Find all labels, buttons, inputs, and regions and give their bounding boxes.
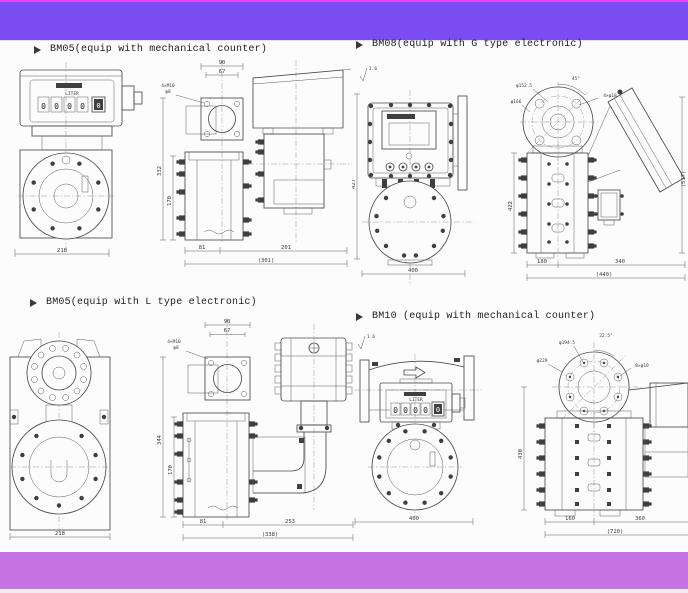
- dim-flange-bolt-circle: φ152.5: [516, 83, 533, 89]
- dim-side-height: 422: [508, 201, 514, 211]
- dim-bolt-angle: 45°: [572, 76, 580, 82]
- svg-text:0: 0: [413, 406, 418, 415]
- svg-text:0: 0: [393, 406, 398, 415]
- bm08-side-view: 45° φ152.5 φ166 4×φ18: [508, 76, 687, 281]
- counter-digit-wheels: 0 0 0 0 0: [391, 402, 444, 416]
- section-title-bm10-mechanical: BM10 (equip with mechanical counter): [356, 311, 595, 322]
- svg-text:0: 0: [96, 102, 100, 110]
- drawing-bm05-l-electronic: 218 90 67 4×M10 φ8 344 170: [8, 310, 360, 556]
- dim-front-width: 218: [55, 531, 65, 537]
- dim-side-height: 430: [518, 449, 524, 459]
- panel-buttons: [386, 163, 433, 171]
- dim-base-right: 360: [635, 516, 645, 522]
- surface-note: 1.6: [367, 334, 375, 340]
- section-title-text: BM05(equip with mechanical counter): [50, 44, 267, 55]
- bullet-arrow-icon: [30, 299, 37, 307]
- svg-text:0: 0: [436, 406, 440, 414]
- svg-text:0: 0: [80, 102, 85, 111]
- bm05l-side-view: [253, 324, 352, 510]
- bm05-front-view: LITER 0 0 0 0 0: [15, 62, 142, 257]
- roughness-check-icon: [360, 68, 367, 81]
- dim-overall-height: (517): [681, 171, 687, 188]
- junction-box: [598, 190, 620, 220]
- dim-bolt-note: 8×φ19: [635, 363, 649, 369]
- bullet-arrow-icon: [356, 41, 363, 49]
- flow-arrow-icon: [404, 367, 425, 378]
- dim-base-total: (440): [596, 272, 613, 278]
- section-title-text: BM10 (equip with mechanical counter): [372, 311, 595, 322]
- bolt-depth-note: φ8: [165, 89, 171, 95]
- dim-flange-bolt-circle: φ194.5: [559, 340, 576, 346]
- bottom-banner: [0, 552, 688, 589]
- dim-height-mid: 170: [168, 465, 174, 475]
- svg-text:0: 0: [54, 102, 59, 111]
- dim-base-right: 253: [285, 519, 295, 525]
- brand-logo-bar: [56, 83, 82, 88]
- dim-top-width: 90: [219, 60, 226, 66]
- dim-base-left: 180: [537, 259, 547, 265]
- bm05-top-view: 90 67 4×M10 φ8 332 170: [157, 60, 347, 267]
- flange-bolts: [174, 421, 257, 514]
- dim-flange-od: φ166: [511, 99, 522, 105]
- dim-front-width: 218: [57, 248, 67, 254]
- dim-flange-od: φ229: [537, 358, 548, 364]
- dim-top-inner: 67: [219, 69, 226, 75]
- surface-note: 1.6: [369, 66, 377, 72]
- transmitter-ribs: [275, 343, 352, 394]
- top-banner: [0, 2, 688, 41]
- svg-text:0: 0: [67, 102, 72, 111]
- dim-base-left: 160: [565, 516, 575, 522]
- counter-digit-wheels: 0 0 0 0 0: [38, 97, 105, 112]
- drawing-bm08-g-electronic: 1.6: [352, 54, 688, 294]
- side-bolts: [518, 157, 596, 248]
- dim-height-mid: 170: [167, 196, 173, 206]
- side-bolts: [255, 139, 264, 202]
- bolt-note: 4×M10: [167, 339, 181, 345]
- dim-base-total: (720): [607, 529, 624, 535]
- bm05l-front-view: 218: [10, 332, 110, 540]
- dim-base-left: 81: [200, 519, 207, 525]
- dim-base-right: 340: [615, 259, 625, 265]
- bullet-arrow-icon: [356, 313, 363, 321]
- bm10-front-view: 1.6 LITER 0 0 0 0: [354, 334, 482, 525]
- section-title-bm08-g-electronic: BM08(equip with G type electronic): [356, 39, 583, 50]
- roughness-check-icon: [358, 336, 365, 349]
- dim-base-total: (338): [262, 532, 279, 538]
- bm05-side-view: [248, 60, 352, 244]
- svg-text:0: 0: [403, 406, 408, 415]
- bm10-side-view: 22.5° φ194.5 φ229 8×φ19: [518, 333, 688, 538]
- dim-top-inner: 67: [224, 328, 231, 334]
- brand-logo-bar: [387, 114, 415, 119]
- bm08-front-view: 1.6: [352, 66, 474, 286]
- bolt-depth-note: φ8: [173, 345, 179, 351]
- drawing-bm05-mechanical: LITER 0 0 0 0 0: [8, 56, 352, 294]
- dim-height-total: 344: [157, 434, 163, 445]
- bolt-note: 4×M10: [161, 83, 175, 89]
- flange-bolts: [176, 159, 251, 236]
- section-title-bm05-mechanical: BM05(equip with mechanical counter): [34, 44, 267, 55]
- section-title-bm05-l-electronic: BM05(equip with L type electronic): [30, 297, 257, 308]
- section-title-text: BM08(equip with G type electronic): [372, 39, 583, 50]
- dim-height-total: 332: [157, 166, 163, 176]
- dim-front-height: 427: [352, 179, 357, 189]
- section-title-text: BM05(equip with L type electronic): [46, 297, 257, 308]
- dim-base-left: 81: [199, 245, 206, 251]
- dim-bolt-angle: 22.5°: [599, 333, 613, 339]
- dim-front-width: 400: [408, 268, 418, 274]
- counter-unit-label: LITER: [409, 397, 423, 403]
- drawing-bm10-mechanical: 1.6 LITER 0 0 0 0: [352, 324, 688, 556]
- bottom-page-edge: [0, 589, 688, 593]
- bullet-arrow-icon: [34, 46, 41, 54]
- brand-logo-bar: [404, 392, 426, 396]
- dim-base-total: (301): [258, 258, 275, 264]
- dim-base-right: 201: [281, 245, 291, 251]
- bm05l-top-view: 90 67 4×M10 φ8 344 170: [157, 318, 353, 541]
- dim-top-width: 90: [224, 319, 231, 325]
- dim-front-width: 400: [409, 516, 419, 522]
- catalog-page: BM05(equip with mechanical counter) LITE…: [0, 0, 688, 593]
- svg-text:0: 0: [423, 406, 428, 415]
- counter-unit-label: LITER: [65, 91, 79, 97]
- svg-text:0: 0: [41, 102, 46, 111]
